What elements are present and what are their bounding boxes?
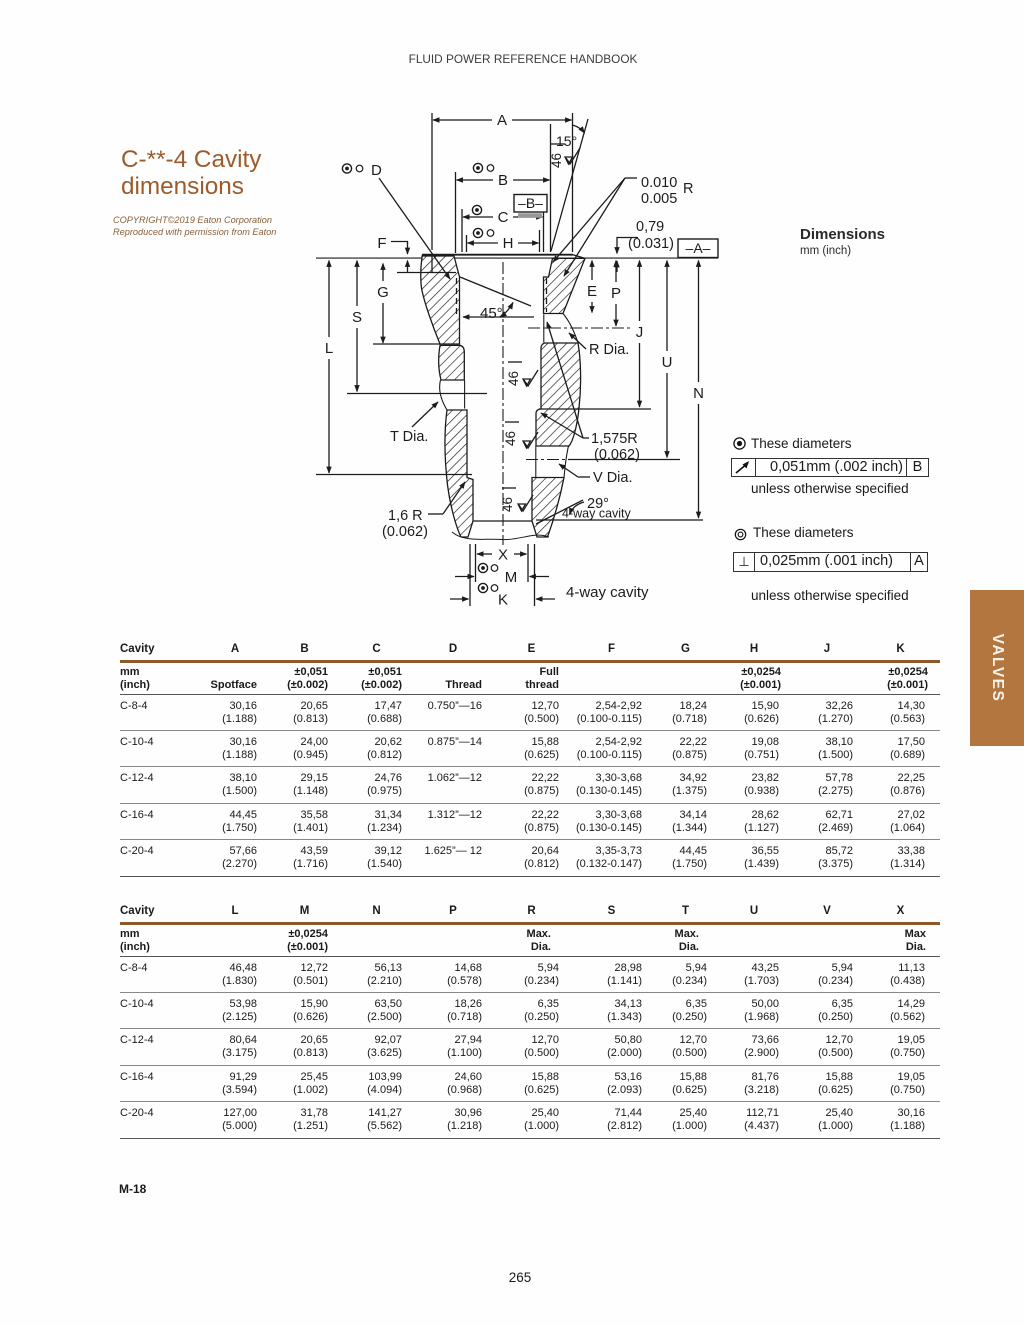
- svg-text:15°: 15°: [556, 133, 577, 149]
- svg-text:X: X: [498, 547, 508, 564]
- svg-text:C: C: [498, 209, 509, 226]
- svg-text:H: H: [503, 235, 514, 252]
- svg-text:4-way cavity: 4-way cavity: [562, 507, 632, 521]
- svg-text:4-way cavity: 4-way cavity: [566, 584, 649, 601]
- svg-text:J: J: [636, 324, 644, 341]
- svg-text:R Dia.: R Dia.: [589, 342, 629, 358]
- svg-text:(0.062): (0.062): [382, 524, 428, 540]
- svg-text:–B–: –B–: [518, 195, 543, 211]
- svg-text:S: S: [352, 309, 362, 326]
- svg-text:45°: 45°: [480, 305, 503, 322]
- svg-text:0.005: 0.005: [641, 191, 677, 207]
- svg-text:G: G: [377, 284, 389, 301]
- svg-text:46: 46: [549, 153, 564, 168]
- svg-text:0,79: 0,79: [636, 219, 664, 235]
- svg-text:P: P: [611, 285, 621, 302]
- svg-text:R: R: [683, 181, 693, 197]
- svg-text:V Dia.: V Dia.: [593, 470, 633, 486]
- svg-text:N: N: [693, 385, 704, 402]
- svg-text:1,6 R: 1,6 R: [388, 508, 423, 524]
- svg-text:A: A: [497, 112, 507, 129]
- svg-text:(0.062): (0.062): [594, 447, 640, 463]
- svg-text:0.010: 0.010: [641, 175, 677, 191]
- svg-text:T Dia.: T Dia.: [390, 429, 428, 445]
- svg-text:–A–: –A–: [686, 240, 711, 256]
- svg-text:1,575R: 1,575R: [591, 431, 638, 447]
- svg-text:L: L: [325, 340, 333, 357]
- svg-text:M: M: [505, 569, 518, 586]
- svg-text:(0.031): (0.031): [628, 236, 674, 252]
- svg-text:46: 46: [503, 431, 518, 446]
- svg-text:F: F: [377, 235, 386, 252]
- svg-text:U: U: [662, 354, 673, 371]
- svg-text:46: 46: [506, 371, 521, 386]
- svg-text:K: K: [498, 592, 508, 609]
- svg-text:D: D: [371, 162, 382, 179]
- svg-text:E: E: [587, 283, 597, 300]
- svg-text:46: 46: [500, 497, 515, 512]
- svg-text:B: B: [498, 172, 508, 189]
